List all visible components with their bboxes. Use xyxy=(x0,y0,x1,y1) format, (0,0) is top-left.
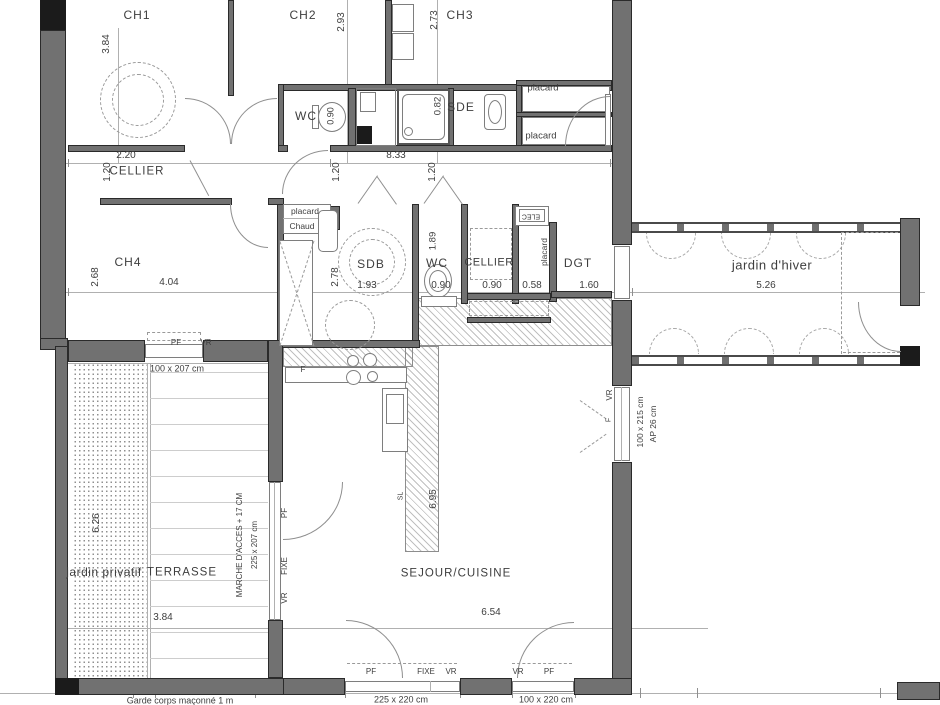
dim-5-26: 5.26 xyxy=(756,281,775,291)
wall-black xyxy=(40,0,66,34)
closet-dashed xyxy=(470,228,512,280)
dim-0-90-b: 0.90 xyxy=(431,281,450,291)
window-frame xyxy=(345,681,460,692)
annotation-marche-acces: MARCHE D'ACCES + 17 CM xyxy=(236,493,244,597)
hob-burner xyxy=(347,355,359,367)
door-frame xyxy=(614,246,630,299)
wall xyxy=(330,145,612,152)
wall xyxy=(385,0,392,86)
dim-3-84-top: 3.84 xyxy=(102,34,112,53)
wall xyxy=(268,620,283,678)
door-leaf xyxy=(190,160,210,196)
washbasin xyxy=(318,210,338,252)
terrace-grid-line xyxy=(150,502,268,503)
terrace-grid-line xyxy=(150,450,268,451)
wall xyxy=(467,293,551,300)
door-arc xyxy=(185,98,231,144)
door-leaf xyxy=(377,176,397,204)
opening-size-100x207: 100 x 207 cm xyxy=(150,365,204,374)
wall xyxy=(551,291,612,298)
door-arc xyxy=(230,204,268,248)
wall xyxy=(412,204,419,346)
room-label-sejour-cuisine: SEJOUR/CUISINE xyxy=(401,568,512,580)
window-frame xyxy=(430,681,431,692)
tick xyxy=(880,688,881,698)
terrace-grid-line xyxy=(150,476,268,477)
fold-window-arc xyxy=(649,328,699,354)
room-label-jardin-privatif: jardin privatif xyxy=(66,566,142,578)
opening-label-pf-2: PF xyxy=(366,668,376,676)
dim-2-68: 2.68 xyxy=(91,267,101,286)
duct-shaft xyxy=(360,92,376,112)
tick xyxy=(68,288,69,296)
opening-label-vr-v: VR xyxy=(281,592,289,603)
wall xyxy=(40,30,66,348)
dim-8-33: 8.33 xyxy=(386,151,405,161)
room-label-ch4: CH4 xyxy=(114,256,141,268)
room-label-ch3: CH3 xyxy=(446,9,473,21)
opening-size-100x215: 100 x 215 cm xyxy=(636,396,645,447)
room-label-cellier-top: CELLIER xyxy=(110,166,165,178)
appliance xyxy=(386,394,404,424)
tick xyxy=(610,159,611,167)
dim-2-20: 2.20 xyxy=(116,151,135,161)
window-frame xyxy=(614,387,630,461)
tick xyxy=(640,688,641,698)
dim-6-95: 6.95 xyxy=(429,489,439,508)
closet-label-elec: ELEC xyxy=(522,213,540,220)
dim-0-82: 0.82 xyxy=(433,97,443,116)
construction-line xyxy=(147,363,148,693)
room-label-sdb: SDB xyxy=(357,258,385,270)
stipple-ground xyxy=(73,363,147,690)
dim-2-93: 2.93 xyxy=(337,12,347,31)
dim-1-60: 1.60 xyxy=(579,281,598,291)
dim-1-20-b: 1.20 xyxy=(332,162,342,181)
room-label-sde: SDE xyxy=(447,101,475,113)
window-frame xyxy=(621,387,622,461)
toilet-tank xyxy=(421,296,457,307)
opening-label-f-window: F xyxy=(606,418,613,422)
room-label-wc-mid: WC xyxy=(426,257,448,269)
wall-black xyxy=(900,346,920,366)
door-arc xyxy=(283,482,343,540)
opening-size-100x220: 100 x 220 cm xyxy=(519,696,573,705)
wall xyxy=(461,204,468,304)
terrace-grid-line xyxy=(150,632,268,633)
dim-1-20-a: 1.20 xyxy=(103,162,113,181)
hob-burner xyxy=(367,371,378,382)
opening-label-vr-2: VR xyxy=(445,668,456,676)
opening-size-225x207: 225 x 207 cm xyxy=(251,521,259,569)
dim-0-90-wc-top: 0.90 xyxy=(327,107,336,125)
room-label-cellier-mid: CELLIER xyxy=(464,258,513,269)
circulation-path xyxy=(841,232,842,354)
wall xyxy=(612,462,632,680)
bath-dashed-circle xyxy=(325,300,375,350)
opening-label-pf-3: PF xyxy=(544,668,554,676)
wall xyxy=(897,682,940,700)
room-label-jardin-dhiver: jardin d'hiver xyxy=(732,259,812,272)
closet-label-placard-3: placard xyxy=(291,207,319,216)
tick xyxy=(697,688,698,698)
room-label-dgt: DGT xyxy=(564,257,592,269)
wall xyxy=(612,0,632,245)
opening-label-vr-window: VR xyxy=(606,389,614,400)
closet-shelf xyxy=(392,33,414,60)
floor-plan: CH1CH2CH3WCSDECELLIERCH4SDBWCCELLIERDGTj… xyxy=(0,0,940,705)
dim-1-93: 1.93 xyxy=(357,281,376,291)
dim-1-89: 1.89 xyxy=(428,232,438,251)
opening-size-225x220: 225 x 220 cm xyxy=(374,696,428,705)
terrace-grid-line xyxy=(150,398,268,399)
opening-label-vr-3: VR xyxy=(512,668,523,676)
wall xyxy=(68,340,145,362)
wall xyxy=(278,84,284,148)
washbasin xyxy=(488,100,502,124)
fold-window-arc xyxy=(796,233,846,259)
fold-window-arc xyxy=(646,233,696,259)
annotation-sl: SL xyxy=(398,492,405,501)
tick xyxy=(632,288,633,296)
door-arc xyxy=(858,302,901,352)
dim-0-90-c: 0.90 xyxy=(482,281,501,291)
closet-label-placard-2: placard xyxy=(525,131,556,141)
wall xyxy=(55,346,68,694)
annotation-garde-corps: Garde corps maçonné 1 m xyxy=(127,697,234,705)
opening-label-pf-1: PF xyxy=(171,339,181,347)
hob-burner xyxy=(363,353,377,367)
fold-window-arc xyxy=(724,328,774,354)
wall xyxy=(900,218,920,306)
cupboard-dashed xyxy=(469,301,549,316)
dim-6-26: 6.26 xyxy=(92,513,102,532)
wall xyxy=(283,678,345,695)
window-frame xyxy=(512,681,574,692)
tick xyxy=(68,159,69,167)
wall xyxy=(228,0,234,96)
door-leaf xyxy=(358,175,378,203)
dim-1-20-c: 1.20 xyxy=(428,162,438,181)
opening-label-pf-v: PF xyxy=(281,508,289,518)
closet-label-chaud: Chaud xyxy=(289,222,314,231)
terrace-grid-line xyxy=(150,580,268,581)
wall xyxy=(55,678,285,695)
room-label-wc-top: WC xyxy=(295,110,317,122)
opening-label-fixe-v: FIXE xyxy=(281,557,289,575)
wall xyxy=(203,340,268,362)
opening-size-ap-26: AP 26 cm xyxy=(649,406,658,443)
wall xyxy=(549,222,557,302)
dim-2-73: 2.73 xyxy=(430,10,440,29)
window-swing-dashed xyxy=(580,400,607,419)
terrace-grid-line xyxy=(150,424,268,425)
construction-line xyxy=(150,363,151,678)
wall-black xyxy=(55,678,79,695)
hob-burner xyxy=(346,370,361,385)
fold-window-arc xyxy=(721,233,771,259)
window-swing-dashed xyxy=(580,434,607,453)
door-arc xyxy=(282,150,328,194)
room-label-terrasse: TERRASSE xyxy=(147,567,217,579)
wall xyxy=(268,340,283,482)
dim-2-78: 2.78 xyxy=(331,267,341,286)
door-arc xyxy=(231,98,277,144)
wall xyxy=(467,317,551,323)
wall xyxy=(460,678,512,695)
closet-label-placard-4: placard xyxy=(540,238,549,266)
furniture-dashed-circle xyxy=(112,74,164,126)
terrace-grid-line xyxy=(150,606,268,607)
room-label-ch2: CH2 xyxy=(289,9,316,21)
wall xyxy=(348,88,356,146)
opening-label-fixe-2: FIXE xyxy=(417,668,435,676)
shower-drain xyxy=(404,127,413,136)
wall xyxy=(278,145,288,152)
wall xyxy=(100,198,232,205)
glazing-band xyxy=(632,355,902,366)
circulation-path xyxy=(841,232,903,233)
terrace-grid-line xyxy=(150,658,268,659)
hatch-region xyxy=(405,346,439,552)
dim-3-84-bottom: 3.84 xyxy=(153,613,172,623)
annotation-f-fridge: F xyxy=(301,366,306,374)
wall xyxy=(574,678,632,695)
dim-0-58: 0.58 xyxy=(522,281,541,291)
room-label-ch1: CH1 xyxy=(123,9,150,21)
door-frame xyxy=(274,482,275,620)
wall xyxy=(612,300,632,386)
dim-6-54: 6.54 xyxy=(481,608,500,618)
closet-shelf xyxy=(392,4,414,32)
circulation-path xyxy=(843,352,900,353)
closet-label-placard-1: placard xyxy=(527,83,558,93)
opening-label-vr-1: VR xyxy=(200,339,211,347)
door-leaf xyxy=(443,176,463,204)
dim-4-04: 4.04 xyxy=(159,278,178,288)
